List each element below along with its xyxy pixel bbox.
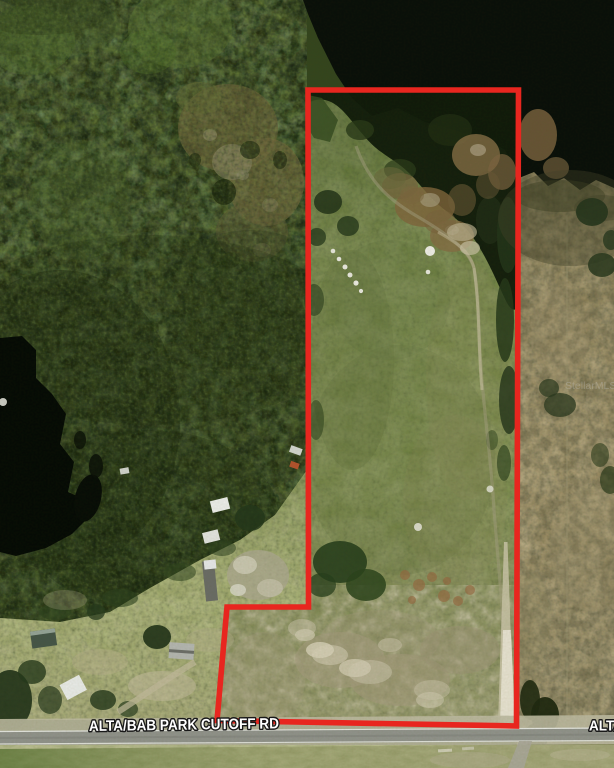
- svg-text:ALTA/BAB PARK CUTOFF RD: ALTA/BAB PARK CUTOFF RD: [89, 715, 279, 735]
- svg-text:ALTA: ALTA: [589, 718, 614, 735]
- svg-text:StellarMLS: StellarMLS: [565, 380, 614, 392]
